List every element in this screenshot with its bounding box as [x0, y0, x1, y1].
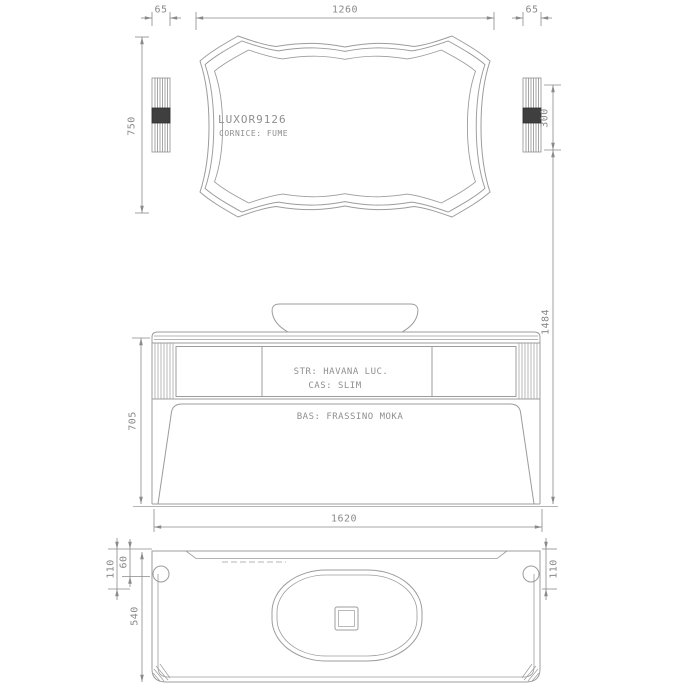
sconce-left	[152, 78, 170, 152]
dim-mirror-width: 1260	[332, 5, 358, 16]
sconce-right	[523, 78, 541, 152]
dim-cabinet-width: 1620	[331, 514, 357, 525]
dim-sconce-left-width: 65	[154, 5, 167, 16]
basin-front-outline	[272, 304, 418, 332]
drawer-type-label: CAS: SLIM	[308, 381, 361, 391]
dim-sconce-height: 300	[540, 108, 551, 128]
dim-cabinet-height: 705	[128, 411, 139, 431]
dim-plan-groove-offset: 60	[119, 555, 130, 568]
model-label: LUXOR9126	[218, 113, 287, 126]
drawing-linework	[0, 0, 700, 700]
faucet-hole-right	[523, 566, 539, 582]
dim-mirror-height: 750	[127, 116, 138, 136]
dim-plan-back-offset: 110	[106, 559, 117, 579]
structure-finish-label: STR: HAVANA LUC.	[294, 367, 389, 377]
technical-drawing-sheet: 65 1260 65 750 300 1484 705 1620 110 60 …	[0, 0, 700, 700]
vanity-front-view	[133, 304, 558, 507]
pilaster-hatch-right	[519, 343, 537, 399]
dim-sconce-right-width: 65	[525, 5, 538, 16]
dim-plan-depth: 540	[130, 606, 141, 626]
dim-plan-right-offset: 110	[549, 559, 560, 579]
faucet-hole-left	[153, 566, 169, 582]
pilaster-hatch-left	[155, 343, 173, 399]
dim-total-height: 1484	[541, 309, 552, 335]
mirror-frame-outline	[200, 36, 490, 217]
base-finish-label: BAS: FRASSINO MOKA	[297, 412, 404, 422]
mirror-frame-finish-label: CORNICE: FUME	[219, 129, 288, 138]
basin-plan-inner	[277, 575, 417, 656]
countertop-plan-view	[152, 551, 540, 682]
